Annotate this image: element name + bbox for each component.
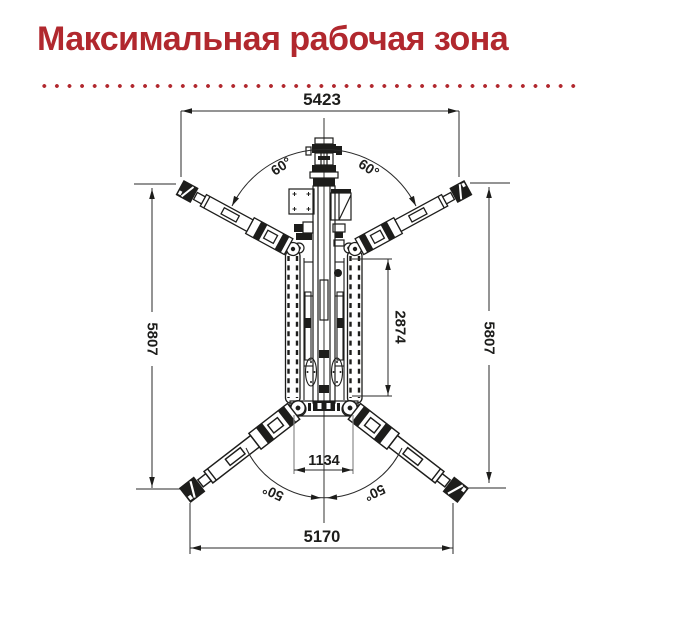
dimension-label-bottom-width: 5170	[304, 528, 341, 546]
outrigger-front-right	[345, 180, 473, 260]
angle-label-top-right: 60°	[356, 156, 382, 181]
angle-label-bottom-right: 50°	[362, 481, 388, 504]
turret-details	[289, 189, 354, 253]
dimension-label-track-length: 2874	[392, 310, 409, 344]
dimension-inner-width: 1134	[294, 415, 353, 474]
dimension-right-height: 5807	[466, 183, 510, 488]
dimension-label-right-height: 5807	[481, 321, 498, 354]
dimension-label-inner-width: 1134	[308, 453, 339, 469]
dimension-left-height: 5807	[134, 184, 180, 489]
dimension-track-length: 2874	[352, 259, 409, 396]
outrigger-front-left	[175, 180, 303, 260]
outrigger-rear-right	[338, 396, 469, 504]
working-zone-diagram: 5423 5807 5807 2874 1134	[0, 0, 675, 626]
outrigger-rear-left	[179, 396, 310, 504]
dimension-label-left-height: 5807	[144, 322, 161, 355]
dimension-top-width: 5423	[181, 90, 459, 177]
dimension-label-top-width: 5423	[303, 90, 341, 109]
angle-label-bottom-left: 50°	[260, 481, 286, 504]
angle-label-top-left: 60°	[268, 154, 294, 179]
dimension-bottom-width: 5170	[190, 503, 453, 554]
